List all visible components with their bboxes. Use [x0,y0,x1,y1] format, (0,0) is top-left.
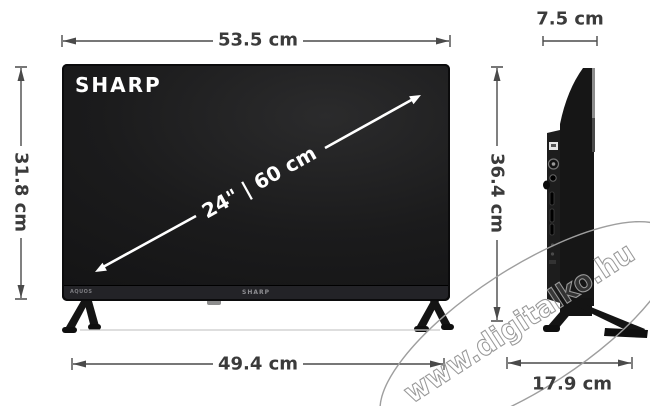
hdmi-port [550,224,554,235]
side-depth-dimension-line [543,36,597,46]
side-height-label: 36.4 cm [487,153,508,233]
hdmi-port [550,192,554,205]
diagram-linework: www.digitalko.hu [0,0,650,406]
front-stand-width-label: 49.4 cm [218,354,298,375]
side-stand-depth-label: 17.9 cm [532,374,612,395]
side-depth-label: 7.5 cm [536,9,604,30]
front-width-label: 53.5 cm [218,30,298,51]
side-knob [543,181,550,190]
av-port [550,175,556,181]
front-height-label: 31.8 cm [11,152,32,232]
front-stand-feet [62,301,454,333]
hdmi-port [550,209,554,222]
side-stand-depth-dimension-arrow [507,357,632,369]
product-dimension-diagram: SHARP AQUOS SHARP [0,0,650,406]
